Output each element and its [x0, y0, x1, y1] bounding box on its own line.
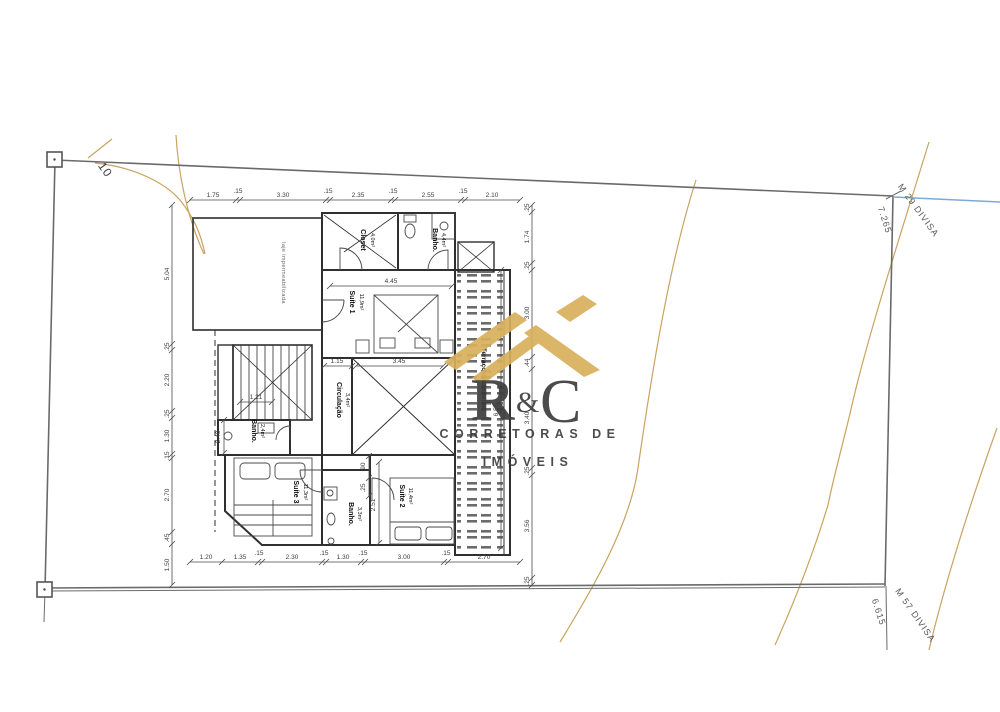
dim-bottom-5: 1.30 [337, 554, 350, 561]
room-label-suite2: Suíte 2 [398, 485, 405, 508]
dim-bottom-4: .15 [319, 550, 328, 557]
closet-door [340, 248, 362, 270]
dim-right-4: .44 [524, 358, 531, 367]
dim-left-2: 2.20 [164, 373, 171, 386]
bath2-door [276, 426, 290, 440]
suite1-door [322, 300, 344, 322]
suite1-nightstand-left [356, 340, 369, 353]
site-plan-page: 10 M 29 DIVISA 7.265 M 57 DIVISA 6.615 [0, 0, 1000, 712]
dim-suite1-inner: 3.45 [393, 358, 406, 365]
room-area-closet: 4,0m² [369, 233, 375, 247]
dim-bottom-7: 3.00 [398, 554, 411, 561]
dim-circ-width: 1.15 [331, 358, 344, 365]
suite2-pillow-left [395, 527, 421, 540]
water-tank-cross [458, 242, 494, 272]
room-label-bath1: Banho. [431, 228, 438, 252]
dim-bath2-depth: 2.40 [215, 430, 222, 443]
dim-top-7: .15 [458, 188, 467, 195]
dim-left-1: .25 [164, 342, 171, 351]
dim-left-4: 1.30 [164, 429, 171, 442]
room-label-bath2: Banho. [250, 419, 257, 443]
dim-top-6: 2.55 [422, 192, 435, 199]
room-area-circulacao: 3,4m² [344, 393, 350, 407]
bath3-drain [328, 538, 334, 544]
dim-suite1-width: 4.45 [385, 278, 398, 285]
dim-stairs: 1.21 [250, 394, 263, 401]
dim-suite2-b: .25 [360, 483, 367, 492]
room-area-bath1: 4,4m² [440, 233, 446, 247]
contour-line-northwest [95, 163, 205, 254]
suite2-door [372, 478, 394, 500]
dimension-text-left: 5.04 .25 2.20 .25 1.30 .15 2.70 .45 1.50 [164, 267, 171, 571]
contour-line-far-east [929, 428, 997, 650]
boundary-labels: M 29 DIVISA 7.265 M 57 DIVISA 6.615 [870, 182, 941, 644]
bath3-sink-counter [324, 487, 337, 500]
survey-marker-northwest-dot [53, 158, 55, 160]
dim-right-7: 3.56 [524, 519, 531, 532]
dim-bottom-6: .15 [358, 550, 367, 557]
room-label-bath3: Banho. [347, 502, 354, 526]
stairs-cross [233, 345, 312, 420]
dim-right-2: .25 [524, 261, 531, 270]
suite1-bed-quilt [374, 295, 438, 353]
room-label-suite1: Suíte 1 [348, 291, 355, 314]
room-area-suite2: 11,4m² [407, 488, 413, 505]
room-labels: laje impermeabilizada Closet 4,0m² Banho… [250, 228, 487, 526]
room-label-laje: laje impermeabilizada [280, 242, 286, 304]
dim-top-0: 1.75 [207, 192, 220, 199]
dim-bottom-8: .15 [441, 550, 450, 557]
suite1-pillow-left [380, 338, 395, 348]
bath3-sink [327, 490, 333, 496]
room-area-bath3: 3,3m² [356, 507, 362, 521]
dim-right-0: .25 [524, 203, 531, 212]
stairs-landing-outline [218, 345, 233, 420]
dim-left-8: 1.50 [164, 558, 171, 571]
logo-subtitle-line1: CORRETORAS DE [439, 427, 620, 441]
bath1-door [428, 250, 448, 270]
site-plan-svg: 10 M 29 DIVISA 7.265 M 57 DIVISA 6.615 [0, 0, 1000, 712]
contour-tick-10 [88, 139, 112, 158]
dim-bottom-0: 1.20 [200, 554, 213, 561]
roof-projection-dashed [215, 330, 322, 532]
dim-top-1: .15 [233, 188, 242, 195]
dim-top-3: .15 [323, 188, 332, 195]
room-area-suite1: 11,9m² [358, 294, 364, 311]
dim-left-3: .25 [164, 409, 171, 418]
dim-right-8: .25 [524, 576, 531, 585]
bath2-sink [224, 432, 232, 440]
suite3-pillow-left [240, 463, 270, 479]
room-label-closet: Closet [359, 229, 366, 251]
survey-marker-southwest-dot [43, 588, 45, 590]
furniture-fixtures [224, 213, 455, 544]
dim-top-8: 2.10 [486, 192, 499, 199]
dim-left-7: .45 [164, 533, 171, 542]
dim-top-5: .15 [388, 188, 397, 195]
contour-line-east [775, 142, 929, 645]
dim-bottom-9: 2.70 [478, 554, 491, 561]
bath1-toilet [405, 224, 415, 238]
boundary-length-7265: 7.265 [876, 205, 894, 234]
logo-subtitle-line2: IMÓVEIS [483, 454, 574, 469]
boundary-label-m29: M 29 DIVISA [896, 182, 941, 239]
bath1-shower-drain [440, 222, 448, 230]
room-label-circulacao: Circulação [335, 382, 342, 418]
dim-suite2-a: .90 [360, 462, 367, 471]
logo-letter-c: C [540, 368, 581, 436]
dim-bottom-1: 1.35 [234, 554, 247, 561]
room-laje-outline [193, 218, 322, 330]
room-label-suite3: Suíte 3 [292, 481, 299, 504]
dim-left-0: 5.04 [164, 267, 171, 280]
room-area-bath2: 2,4m² [259, 424, 265, 438]
dim-right-3: 3.00 [524, 306, 531, 319]
boundary-left-edge [45, 160, 55, 590]
boundary-label-m57: M 57 DIVISA [893, 587, 937, 644]
suite2-pillow-right [426, 527, 452, 540]
dimension-text-top: 1.75 .15 3.30 .15 2.35 .15 2.55 .15 2.10 [207, 188, 499, 199]
dim-top-2: 3.30 [277, 192, 290, 199]
boundary-length-6615: 6.615 [870, 597, 888, 626]
dim-left-6: 2.70 [164, 488, 171, 501]
bath3-toilet [327, 513, 335, 525]
dim-left-5: .15 [164, 451, 171, 460]
roof-accent-band [556, 295, 597, 322]
boundary-right-edge [885, 196, 893, 586]
dim-top-4: 2.35 [352, 192, 365, 199]
bath1-cistern [404, 215, 416, 222]
logo-letter-r: R [471, 367, 515, 433]
room-area-suite3: 11,3m² [302, 484, 308, 501]
suite1-nightstand-right [440, 340, 453, 353]
dim-right-1: 1.74 [524, 230, 531, 243]
dim-bottom-3: 2.30 [286, 554, 299, 561]
dim-suite2-depth: 2.51 [370, 498, 377, 511]
dim-bottom-2: .15 [254, 550, 263, 557]
logo-ampersand: & [516, 386, 539, 419]
